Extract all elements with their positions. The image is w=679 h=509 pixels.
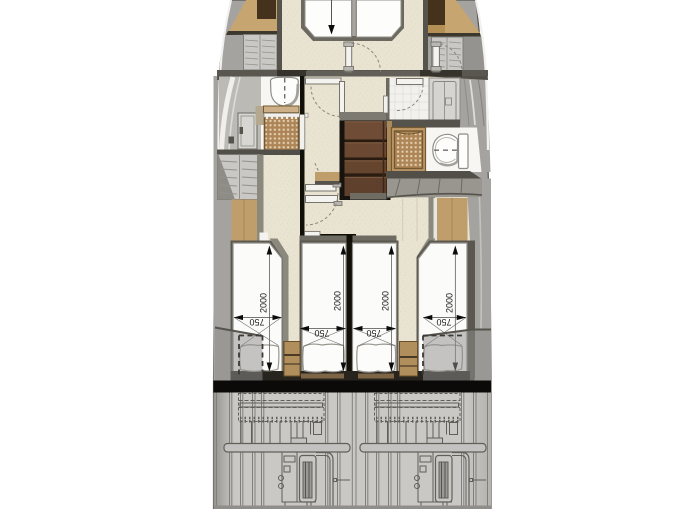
svg-text:2000: 2000 [333, 291, 343, 311]
svg-text:750: 750 [436, 317, 451, 327]
svg-text:2000: 2000 [259, 293, 269, 313]
svg-text:2000: 2000 [381, 291, 391, 311]
svg-text:750: 750 [249, 317, 264, 327]
svg-text:2000: 2000 [445, 293, 455, 313]
svg-text:750: 750 [366, 328, 381, 338]
svg-text:750: 750 [314, 328, 329, 338]
